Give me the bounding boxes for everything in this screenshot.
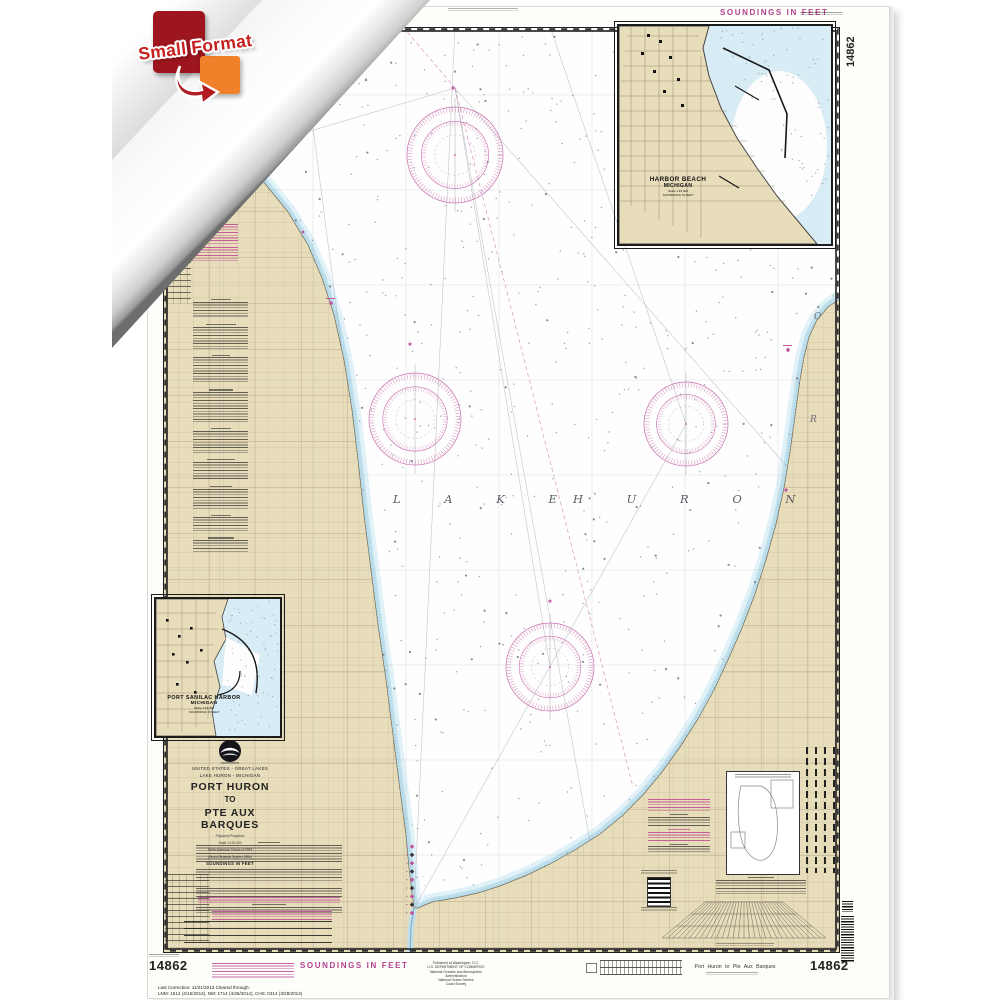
curl-arrow-icon	[172, 62, 224, 106]
chart-title-3: PTE AUX BARQUES	[184, 807, 276, 831]
stacked-code	[842, 901, 853, 912]
graphic-scale-bars	[184, 921, 332, 947]
inset-harbor-beach: HARBOR BEACH MICHIGAN Scale 1:15,000 SOU…	[617, 24, 833, 246]
publisher-imprint: Published at Washington, D.C. U.S. DEPAR…	[420, 961, 492, 987]
chart-number-bottom-left: 14862	[149, 958, 188, 973]
chart-title-1: PORT HURON	[184, 781, 276, 793]
margin-ruler	[600, 960, 682, 975]
chart-product-photo: SOUNDINGS IN FEET 14862	[0, 0, 1000, 1000]
region-line: LAKE HURON - MICHIGAN	[184, 773, 276, 778]
top-center-fineprint	[448, 8, 518, 11]
inset-port-sanilac-label: PORT SANILAC HARBOR MICHIGAN Scale 1:10,…	[158, 695, 250, 714]
svg-text:✶: ✶	[547, 597, 554, 606]
stock-number	[149, 954, 179, 957]
chart-title-2: TO	[184, 795, 276, 804]
letter-r: R	[809, 415, 817, 425]
inset-port-sanilac: PORT SANILAC HARBOR MICHIGAN Scale 1:10,…	[154, 597, 282, 738]
vertical-scales	[806, 747, 836, 873]
bottom-soundings-label: SOUNDINGS IN FEET	[300, 961, 409, 970]
top-margin-fineprint	[800, 12, 842, 15]
letter-o: O	[814, 312, 822, 322]
bottom-magenta-note	[212, 963, 294, 979]
interpolator-diagram	[659, 899, 829, 943]
right-notes	[648, 799, 710, 854]
svg-text:✶: ✶	[450, 84, 457, 93]
notes-column	[193, 299, 248, 558]
source-diagram	[726, 771, 800, 875]
lake-name-word1: L A K E	[393, 492, 577, 506]
emblem-caption-top	[641, 870, 677, 875]
chart-number-top-right: 14862	[845, 17, 857, 67]
barcode	[841, 916, 854, 962]
interpolator-caption	[716, 943, 774, 946]
noaa-logo-icon	[218, 739, 242, 765]
correction-note: Last Correction: 11/21/2013 Cleared thro…	[158, 985, 302, 997]
compass-note-box	[586, 963, 597, 973]
projection-line: Polyconic Projection	[184, 834, 276, 838]
source-diagram-caption	[716, 877, 806, 894]
lake-name-word2: H U R O N	[573, 492, 816, 506]
svg-text:✶: ✶	[407, 340, 414, 349]
chart-title-bottom-right: Port Huron to Pte Aux Barques	[692, 964, 778, 970]
inset-harbor-beach-label: HARBOR BEACH MICHIGAN Scale 1:15,000 SOU…	[633, 176, 723, 197]
nation-line: UNITED STATES - GREAT LAKES	[184, 766, 276, 771]
chart-title-sub	[706, 972, 758, 975]
